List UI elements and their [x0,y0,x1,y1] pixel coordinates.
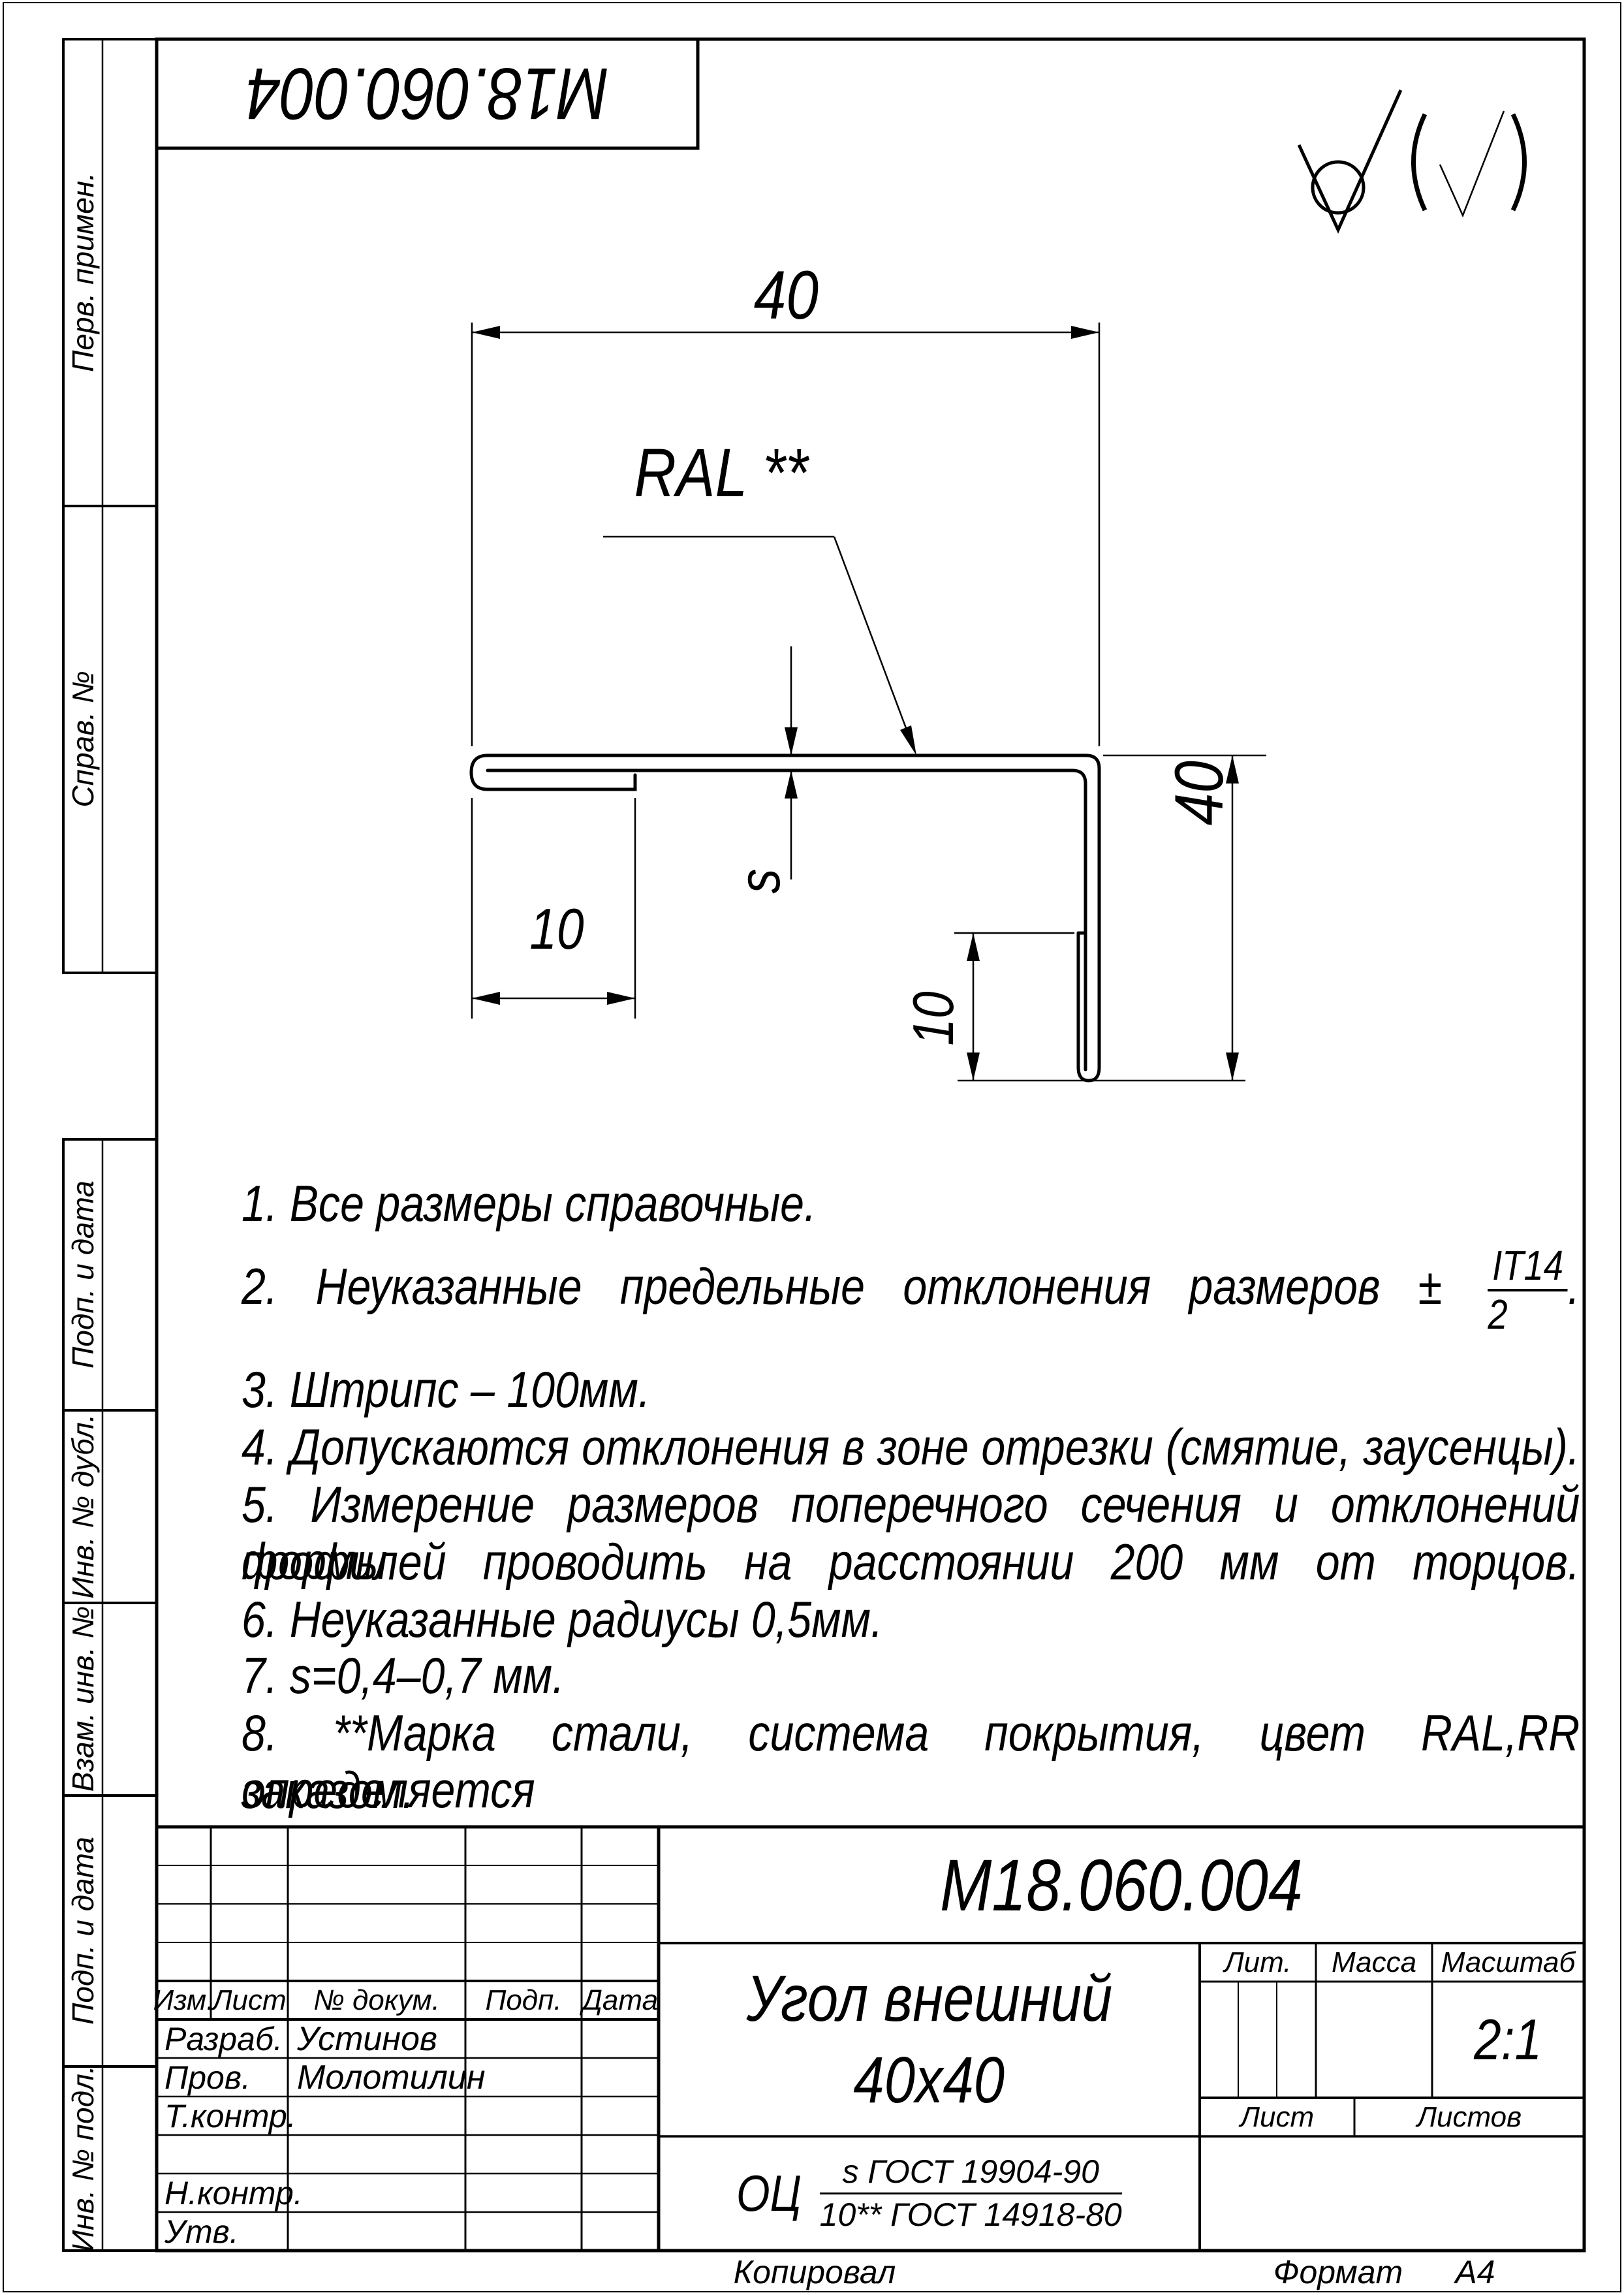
note-6: 6. Неуказанные радиусы 0,5мм. [242,1591,1580,1648]
col-header-data: Дата [582,1981,659,2019]
dim-top-width: 40 [688,258,884,333]
dim-thickness: s [721,842,799,921]
margin-stamp-label: Перв. примен. [65,172,101,372]
material-fraction: s ГОСТ 19904-9010** ГОСТ 14918-80 [820,2153,1122,2234]
format-value: А4 [1429,2254,1521,2290]
dim-left-hem: 10 [505,894,609,963]
part-name-line1: Угол внешний [746,1958,1112,2040]
note-7: 7. s=0,4–0,7 мм. [242,1647,1580,1704]
dimension-arrows [472,326,1239,1081]
note-4: 4. Допускаются отклонения в зоне отрезки… [242,1419,1580,1476]
material-cell: ОЦ s ГОСТ 19904-9010** ГОСТ 14918-80 [659,2136,1200,2251]
check-icon [1440,111,1504,215]
col-header-doc: № докум. [288,1981,465,2019]
margin-stamp-vzam-inv-no: Взам. инв. № [63,1568,102,1829]
part-name: Угол внешний 40х40 [659,1943,1200,2136]
sheets-label: Листов [1354,2098,1584,2136]
margin-stamp-inv-no-podl: Инв. № подл. [63,2028,102,2289]
top-designation-text: М18.060.004 [214,52,641,136]
mass-header: Масса [1316,1943,1432,1982]
coating-label: RAL ** [601,418,842,529]
row-nkontr: Н.контр. [164,2174,288,2212]
margin-stamp-label: Подп. и дата [65,1837,101,2025]
margin-stamp-sprav-no: Справ. № [63,609,102,870]
sheet-label: Лист [1200,2098,1354,2136]
margin-stamp-podp-i-data-1: Подп. и дата [63,1144,102,1405]
row-prov: Пров. [164,2058,288,2097]
part-name-line2: 40х40 [854,2040,1005,2121]
dim-right-height: 40 [1128,721,1272,865]
col-header-podp: Подп. [465,1981,582,2019]
row-utv: Утв. [164,2212,288,2251]
col-header-list: Лист [211,1981,288,2019]
note-3: 3. Штрипс – 100мм. [242,1361,1580,1418]
note-2-text: 2. Неуказанные предельные отклонения раз… [242,1258,1442,1315]
top-designation: М18.060.004 [157,39,698,148]
margin-stamp-perv-primen: Перв. примен. [63,142,102,403]
note-8-line-2: заказом. [242,1762,1580,1819]
row-razrab: Разраб. [164,2019,288,2058]
margin-stamp-podp-i-data-2: Подп. и дата [63,1800,102,2061]
tolerance-fraction: IT142 [1488,1244,1567,1337]
surface-finish-symbol [1299,90,1525,230]
margin-stamp-label: Взам. инв. № [65,1606,101,1792]
margin-stamp-label: Справ. № [65,671,101,807]
note-5-line-2: профилей проводить на расстоянии 200 мм … [242,1534,1580,1591]
title-block-designation: М18.060.004 [659,1827,1584,1943]
material-prefix: ОЦ [736,2164,802,2223]
drawing-sheet: Перв. примен. Справ. № Подп. и дата Инв.… [0,0,1624,2295]
row-tkontr: Т.контр. [164,2097,288,2135]
scale-value: 2:1 [1432,1982,1584,2098]
dim-bottom-hem: 10 [875,960,992,1077]
dimension-lines [472,323,1266,1081]
close-paren-icon [1513,114,1525,210]
name-prov: Молотилин [297,2058,465,2097]
format-label: Формат [1260,2254,1416,2290]
col-header-izm: Изм. [157,1981,211,2019]
note-2: 2. Неуказанные предельные отклонения раз… [242,1244,1580,1337]
name-razrab: Устинов [297,2019,465,2058]
copied-label: Копировал [684,2254,945,2290]
scale-header: Масштаб [1432,1943,1584,1982]
note-1: 1. Все размеры справочные. [242,1175,1580,1232]
margin-stamp-label: Инв. № подл. [65,2065,101,2251]
open-paren-icon [1414,114,1426,210]
lit-header: Лит. [1200,1943,1316,1982]
margin-stamp-label: Подп. и дата [65,1180,101,1369]
